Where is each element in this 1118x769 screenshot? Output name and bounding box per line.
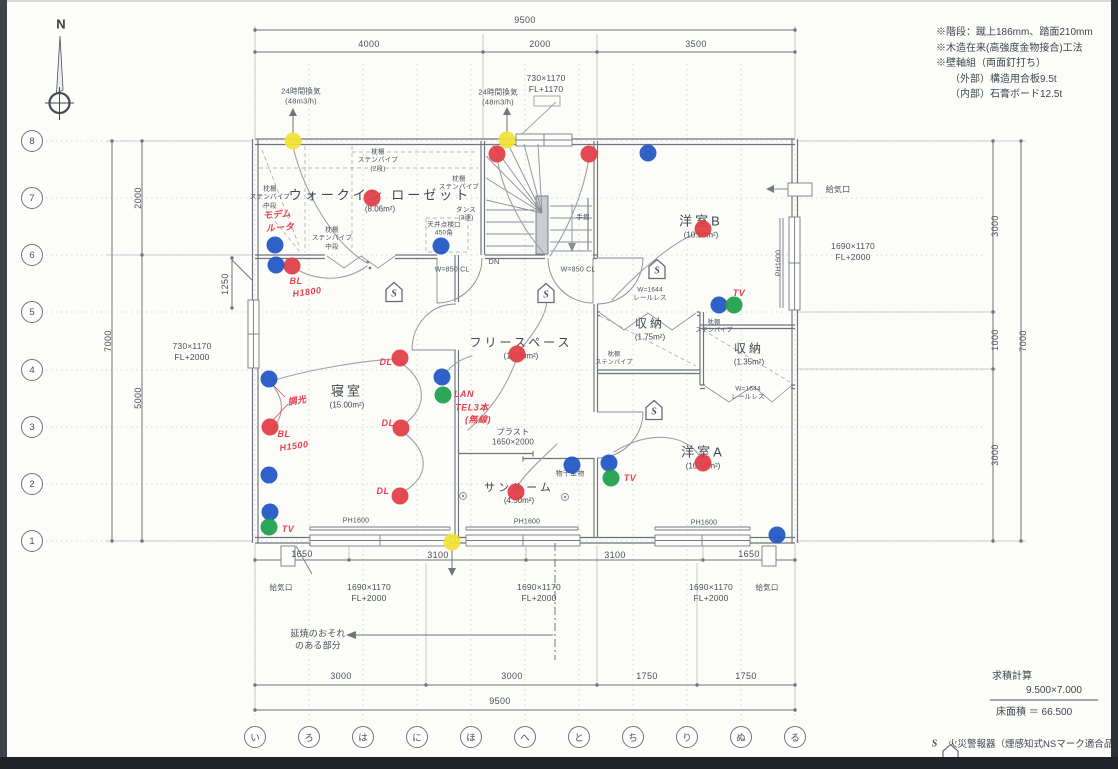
grid-row-bubble: 1 (21, 530, 43, 552)
dimension-value: 1750 (636, 671, 658, 683)
grid-row-bubble: 4 (21, 359, 43, 381)
compass-north-label: N (56, 17, 65, 32)
plan-label: 24時間換気 (48m3/h) (281, 86, 321, 106)
spec-note-line: （外部）構造用合板9.5t (936, 72, 1093, 88)
airflow-arrow (766, 185, 774, 193)
grid-row-bubble: 3 (21, 416, 43, 438)
dimension-value: 1250 (220, 273, 232, 295)
plan-label: PH1600 (514, 517, 541, 526)
spec-note-line: ※階段：蹴上186mm、踏面210mm (936, 25, 1093, 41)
area-calc-result: 床面積 ＝ 66.500 (996, 703, 1072, 718)
grid-lines (46, 64, 986, 724)
marker-dot-green (261, 519, 278, 536)
marker-dot-red (509, 346, 526, 363)
plan-label: PH1600 (774, 250, 783, 277)
fire-alarm-letter: S (932, 738, 938, 749)
room-name: 収納 (734, 340, 764, 357)
grid-col-bubble: ほ (460, 726, 482, 748)
grid-col-bubble: は (352, 726, 374, 748)
marker-dot-blue (267, 237, 284, 254)
grid-col-bubble: り (676, 726, 698, 748)
exhaust-arrowhead (448, 568, 456, 576)
plan-label: W=1644 レールレス (633, 287, 667, 304)
plan-label: W=1644 レールレス (731, 386, 765, 403)
grid-col-bubble: ち (622, 726, 644, 748)
floorplan-page: ※階段：蹴上186mm、踏面210mm※木造在来(高強度金物接合)工法※壁軸組（… (0, 0, 1118, 769)
room-area: (15.00m²) (330, 401, 365, 410)
dimension-value: 1000 (990, 329, 1002, 351)
grid-row-bubble: 7 (21, 187, 43, 209)
grid-col-bubble: と (568, 726, 590, 748)
extension-lines (106, 26, 1026, 712)
dimension-value: 5000 (133, 387, 145, 409)
marker-dot-blue (564, 457, 581, 474)
fire-alarm-icon: S (385, 281, 403, 303)
room-area: (1.75m²) (635, 333, 665, 342)
spec-notes: ※階段：蹴上186mm、踏面210mm※木造在来(高強度金物接合)工法※壁軸組（… (936, 25, 1093, 103)
grid-row-bubble: 6 (21, 244, 43, 266)
plan-label: 枕棚 ステンパイプ (595, 352, 632, 368)
dimension-value: 9500 (489, 696, 511, 708)
fire-alarm-letter: S (651, 406, 657, 417)
plan-label: 給気口 (755, 583, 778, 593)
dimension-value: 9500 (514, 15, 536, 27)
spec-note-line: ※壁軸組（両面釘打ち） (936, 56, 1093, 72)
plan-label: 1690×1170 FL+2000 (831, 241, 875, 263)
handwritten-note: ルータ (265, 220, 294, 235)
room-name: 収納 (635, 315, 665, 332)
marker-dot-red (489, 146, 506, 163)
scan-edge-top (0, 0, 1118, 2)
handwritten-note: DL (377, 486, 390, 496)
room-label: 収納 (1.35m²) (734, 340, 764, 367)
dimension-value: 3000 (990, 444, 1002, 466)
dimension-value: 3500 (685, 39, 707, 51)
plan-label: プラスト 1650×2000 (492, 428, 534, 449)
plan-label: 1690×1170 FL+2000 (689, 582, 733, 604)
marker-dot-blue (261, 467, 278, 484)
spec-note-line: ※木造在来(高強度金物接合)工法 (936, 41, 1093, 57)
handwritten-note: TV (282, 524, 295, 534)
marker-dot-yellow (285, 133, 302, 150)
dimension-value: 3100 (427, 550, 449, 562)
grid-row-bubble: 5 (21, 301, 43, 323)
dimension-value: 3000 (501, 671, 523, 683)
marker-dot-red (262, 419, 279, 436)
fire-alarm-icon: S (926, 732, 943, 753)
plan-label: 延焼のおそれ のある部分 (290, 628, 345, 651)
plan-label: 1690×1170 FL+2000 (347, 582, 391, 604)
fire-alarm-letter: S (391, 288, 397, 299)
fire-alarm-icon: S (645, 399, 663, 421)
marker-dot-red (695, 221, 712, 238)
handwritten-note: LAN (454, 389, 474, 399)
plan-label: W=850 CL (561, 265, 596, 274)
dimension-value: 7000 (1018, 330, 1030, 352)
marker-dot-blue (640, 145, 657, 162)
dimension-value: 2000 (529, 39, 551, 51)
marker-dot-blue (433, 238, 450, 255)
marker-dot-red (392, 488, 409, 505)
room-area: (8.06m²) (289, 205, 472, 214)
dimension-value: 1650 (738, 549, 760, 561)
room-label: 寝室 (15.00m²) (330, 381, 365, 410)
spec-note-line: （内部）石膏ボード12.5t (936, 87, 1093, 103)
legend-text: 火災警報器（煙感知式NSマーク適合品） (948, 736, 1118, 750)
marker-dot-red (392, 350, 409, 367)
grid-row-bubble: 2 (21, 473, 43, 495)
plan-label: 給気口 (826, 185, 851, 195)
handwritten-note: TV (624, 473, 637, 483)
marker-dot-blue (268, 257, 285, 274)
marker-dot-red (364, 190, 381, 207)
dimension-value: 7000 (103, 330, 115, 352)
compass-icon (45, 36, 74, 120)
marker-dot-yellow (444, 534, 461, 551)
marker-dot-blue (261, 371, 278, 388)
grid-col-bubble: い (244, 726, 266, 748)
marker-dot-green (603, 470, 620, 487)
dimension-value: 3000 (330, 671, 352, 683)
fire-alarm-legend: S 火災警報器（煙感知式NSマーク適合品） (926, 732, 1118, 753)
plan-label: PH1600 (343, 516, 370, 525)
scan-edge-left (0, 0, 7, 769)
dimension-value: 3000 (990, 215, 1002, 237)
handwritten-note: BL (290, 276, 303, 286)
area-calc-title: 求積計算 (992, 667, 1032, 682)
exhaust-arrowhead (503, 107, 511, 115)
handwritten-note: BL (278, 429, 291, 439)
dimension-value: 3100 (604, 550, 626, 562)
room-label: 収納 (1.75m²) (635, 315, 665, 342)
fire-alarm-letter: S (543, 289, 549, 300)
exhaust-arrowhead (289, 108, 297, 116)
grid-row-bubble: 8 (21, 130, 43, 152)
fire-alarm-icon: S (537, 282, 555, 304)
handwritten-note: (無線) (465, 413, 491, 426)
marker-dot-green (726, 297, 743, 314)
plan-label: 枕棚 ステンパイプ (2段) (358, 148, 398, 173)
dimension-value: 4000 (358, 39, 380, 51)
plan-label: 1690×1170 FL+2000 (517, 582, 561, 604)
fire-alarm-letter: S (654, 265, 660, 276)
plan-label: 手摺 (576, 214, 589, 222)
scan-edge-bottom (0, 757, 1118, 769)
plan-label: 730×1170 FL+2000 (172, 341, 211, 363)
floorplan-linework (0, 0, 1118, 769)
grid-col-bubble: に (406, 726, 428, 748)
dimension-value: 1750 (735, 671, 757, 683)
plan-label: 給気口 (269, 583, 292, 593)
marker-dot-red (508, 484, 525, 501)
grid-col-bubble: ぬ (730, 726, 752, 748)
plan-label: 枕棚 ステンパイプ 中段 (312, 226, 352, 251)
plan-label: DN (488, 257, 499, 267)
stairs (486, 96, 592, 254)
marker-dot-blue (434, 369, 451, 386)
marker-dot-green (435, 387, 452, 404)
plan-label: PH1600 (691, 518, 718, 527)
marker-dot-red (581, 146, 598, 163)
plan-label: 枕棚 ステンパイプ (695, 320, 732, 336)
dimension-value: 2000 (133, 187, 145, 209)
area-calc-formula: 9.500×7.000 (1026, 685, 1082, 696)
marker-dot-red (393, 420, 410, 437)
marker-dot-red (695, 455, 712, 472)
plan-label: W=850 CL (435, 265, 470, 274)
dimension-value: 1650 (291, 549, 313, 561)
plan-label: 730×1170 FL+1170 (526, 73, 565, 95)
plan-label: 24時間換気 (48m3/h) (478, 87, 518, 107)
plan-label: 天井点検口 450角 (427, 222, 461, 239)
grid-col-bubble: ろ (298, 726, 320, 748)
grid-col-bubble: へ (514, 726, 536, 748)
room-area: (1.35m²) (734, 358, 764, 367)
marker-dot-blue (769, 527, 786, 544)
fire-alarm-icon: S (648, 258, 666, 280)
scan-edge-right (1111, 0, 1118, 769)
marker-dot-red (284, 258, 301, 275)
grid-col-bubble: る (784, 726, 806, 748)
room-name: 寝室 (330, 381, 365, 400)
